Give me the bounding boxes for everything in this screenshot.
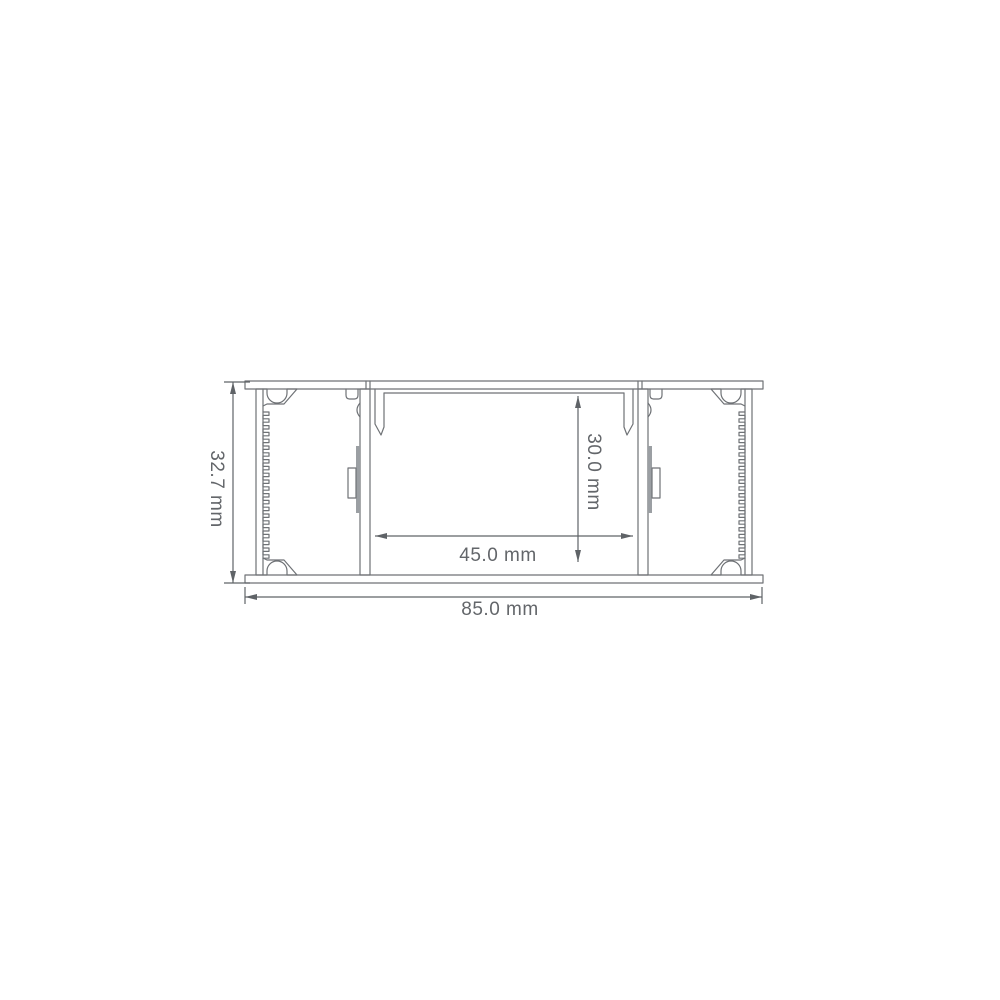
- dimension-annotations: 32.7 mm 85.0 mm 45.0 mm 30.0 mm: [206, 382, 762, 620]
- arrowhead-icon: [230, 571, 236, 583]
- bottom-right-screw-boss: [711, 558, 745, 575]
- height-dimension: 32.7 mm: [206, 382, 250, 583]
- arrowhead-icon: [245, 594, 257, 600]
- arrowhead-icon: [575, 396, 581, 408]
- right-clip-latch: [652, 468, 660, 498]
- top-flange: [245, 381, 763, 389]
- width-dimension: 85.0 mm: [245, 587, 762, 620]
- right-serration: [739, 412, 745, 558]
- right-divider-wall: [638, 389, 648, 575]
- left-outer-wall: [256, 389, 263, 575]
- inner-width-dimension-label: 45.0 mm: [459, 545, 536, 566]
- arrowhead-icon: [230, 382, 236, 394]
- drawing-canvas: 32.7 mm 85.0 mm 45.0 mm 30.0 mm: [0, 0, 1000, 1000]
- right-snap-hook: [624, 389, 633, 435]
- height-dimension-label: 32.7 mm: [206, 450, 227, 527]
- right-outer-wall: [745, 389, 752, 575]
- bottom-left-screw-boss: [263, 558, 297, 575]
- left-divider-tab: [346, 389, 358, 399]
- inner-width-dimension: 45.0 mm: [375, 533, 633, 566]
- right-divider-tab: [650, 389, 662, 399]
- arrowhead-icon: [750, 594, 762, 600]
- left-clip-latch: [348, 468, 356, 498]
- inner-height-dimension: 30.0 mm: [575, 396, 604, 562]
- left-divider-wall: [360, 389, 370, 575]
- arrowhead-icon: [375, 533, 387, 539]
- arrowhead-icon: [621, 533, 633, 539]
- inner-height-dimension-label: 30.0 mm: [583, 433, 604, 510]
- width-dimension-label: 85.0 mm: [461, 599, 538, 620]
- top-left-screw-boss: [263, 389, 297, 406]
- left-snap-hook: [375, 389, 384, 435]
- left-serration: [263, 412, 269, 558]
- arrowhead-icon: [575, 550, 581, 562]
- technical-drawing: 32.7 mm 85.0 mm 45.0 mm 30.0 mm: [0, 0, 1000, 1000]
- bottom-flange: [245, 575, 763, 583]
- top-right-screw-boss: [711, 389, 745, 406]
